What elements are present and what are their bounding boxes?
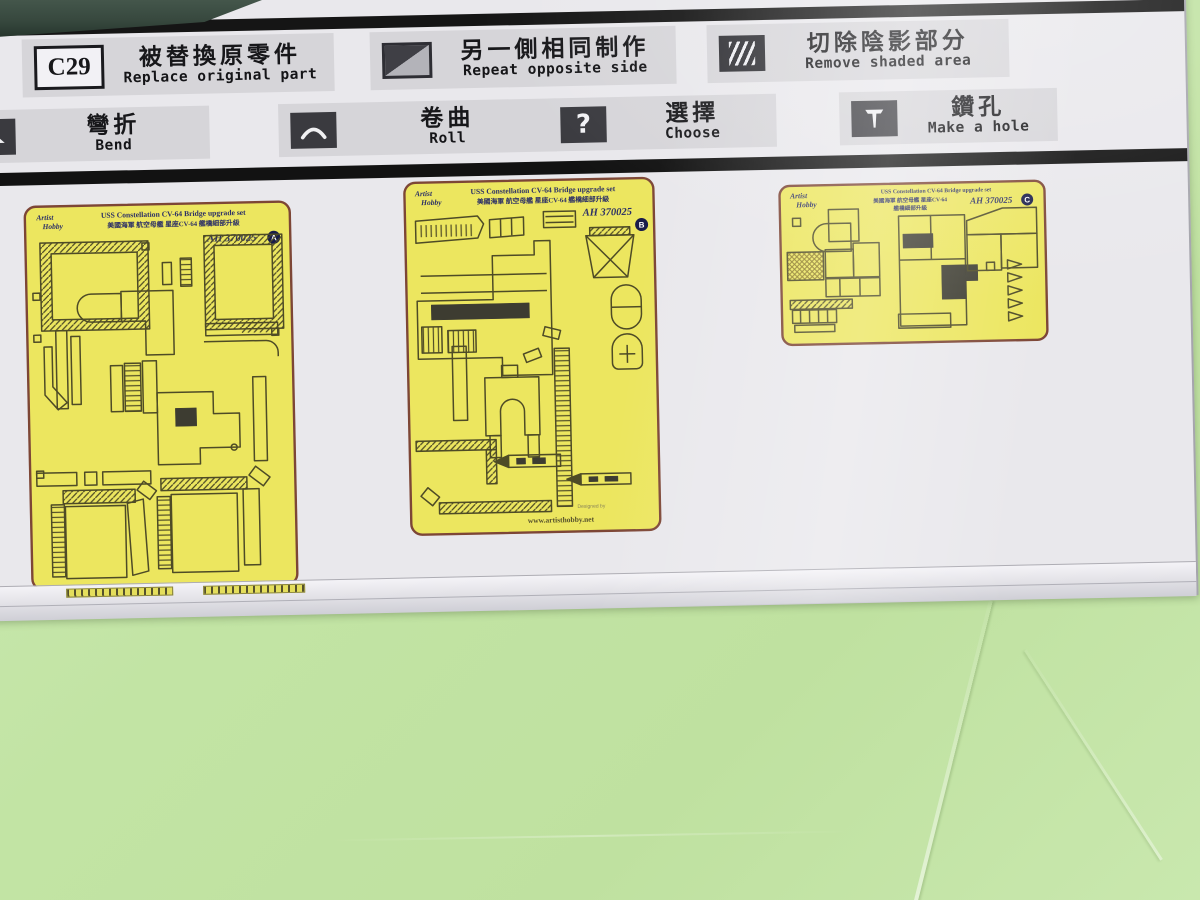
legend-make-a-hole: 鑽孔 Make a hole (839, 88, 1058, 146)
legend-zh-label: 選擇 (665, 101, 720, 127)
legend-zh-label: 卷曲 (420, 106, 475, 132)
mat-crease (330, 830, 850, 841)
brand-logo: Artist (35, 213, 54, 222)
legend-roll: 卷曲 Roll (278, 98, 557, 157)
hatched-square-icon (719, 35, 766, 72)
roll-icon (290, 111, 337, 148)
bend-icon (0, 118, 16, 155)
sheet-letter: B (639, 220, 645, 229)
legend-en-label: Choose (665, 126, 721, 143)
photo-scene: C29 被替換原零件 Replace original part 另一側相同制作… (0, 0, 1200, 900)
legend-zh-label: 彎折 (86, 113, 141, 139)
brand-logo: Artist (789, 191, 808, 200)
photo-etch-fret-a: Artist Hobby USS Constellation CV-64 Bri… (23, 200, 299, 592)
legend-zh-label: 鑽孔 (951, 95, 1006, 121)
legend-repeat-opposite-side: 另一側相同制作 Repeat opposite side (370, 26, 677, 90)
legend-en-label: Remove shaded area (805, 53, 971, 72)
legend-en-label: Replace original part (123, 67, 317, 87)
fret-edge-sliver (203, 584, 305, 595)
sheet-letter: C (1024, 195, 1030, 204)
legend-choose: ? 選擇 Choose (548, 94, 777, 152)
fret-code: AH 370025 (969, 195, 1013, 206)
legend-en-label: Repeat opposite side (463, 60, 648, 80)
question-mark-icon: ? (560, 106, 607, 143)
legend-en-label: Bend (95, 138, 132, 154)
brand-logo: Artist (414, 189, 433, 198)
designed-by-label: Designed by (577, 503, 605, 510)
legend-replace-original-part: C29 被替換原零件 Replace original part (22, 33, 335, 98)
photo-etch-fret-c: Artist Hobby USS Constellation CV-64 Bri… (778, 179, 1049, 347)
legend-remove-shaded-area: 切除陰影部分 Remove shaded area (706, 19, 1009, 83)
brand-logo: Hobby (41, 222, 63, 231)
mat-crease (911, 600, 992, 900)
instruction-sheet: C29 被替換原零件 Replace original part 另一側相同制作… (0, 0, 1198, 621)
part-number-box-icon: C29 (34, 45, 105, 90)
mat-crease (1024, 649, 1163, 860)
fret-code: AH 370025 (582, 207, 633, 219)
drill-icon (851, 100, 898, 137)
website-url: www.artisthobby.net (528, 515, 595, 525)
photo-etch-fret-b: Artist Hobby USS Constellation CV-64 Bri… (403, 176, 662, 536)
brand-logo: Hobby (795, 200, 817, 209)
diagonal-split-square-icon (382, 42, 433, 79)
legend-en-label: Roll (429, 131, 466, 147)
legend-en-label: Make a hole (928, 119, 1030, 137)
legend-bend: 彎折 Bend (0, 106, 210, 164)
fret-edge-sliver (66, 586, 173, 597)
brand-logo: Hobby (420, 198, 442, 207)
